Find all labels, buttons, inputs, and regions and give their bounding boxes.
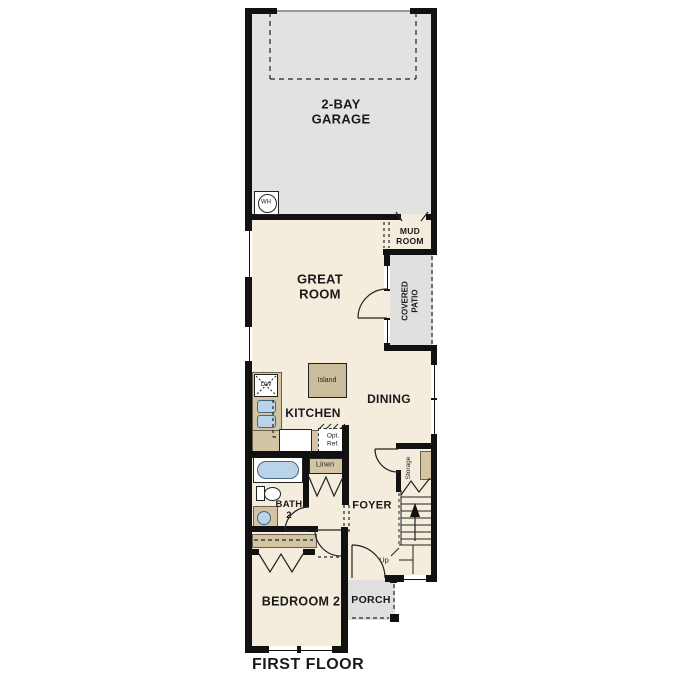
bath2-label: BATH 2 — [276, 499, 303, 521]
window-stair-landing — [402, 575, 428, 582]
wall-bath-north — [245, 451, 348, 458]
window-greatroom-2 — [245, 325, 252, 363]
window-dining-2 — [431, 398, 437, 436]
window-bedroom-2 — [299, 646, 334, 653]
first-floor-title: FIRST FLOOR — [252, 656, 364, 674]
mudroom-door-opening — [401, 214, 426, 220]
wall-bedroom-east — [341, 527, 348, 653]
linen-label: Linen — [316, 461, 334, 470]
covered-patio-label: COVERED PATIO — [400, 281, 419, 321]
wall-top-left-stub — [245, 8, 277, 14]
window-dining-1 — [431, 363, 437, 401]
window-bedroom-1 — [267, 646, 299, 653]
opt-ref-label: Opt. Ref. — [327, 432, 339, 447]
window-patio-1 — [384, 264, 390, 291]
interior-floor-bedroom — [252, 582, 348, 646]
island-label: Island — [318, 377, 337, 385]
wall-patio-south — [384, 345, 434, 351]
wall-kitchen-foyer — [342, 425, 349, 505]
vanity-sink — [257, 511, 271, 525]
water-heater-label: WH — [261, 199, 271, 206]
bedroom2-label: BEDROOM 2 — [262, 595, 340, 610]
wall-storage-west — [396, 470, 401, 492]
foyer-label: FOYER — [352, 500, 391, 513]
porch-corner-br — [390, 614, 399, 622]
closet-jamb-right — [303, 549, 315, 555]
bathtub-basin — [257, 461, 299, 479]
up-label: Up — [379, 557, 389, 566]
garage-label: 2-BAY GARAGE — [312, 97, 371, 128]
porch-label: PORCH — [351, 594, 390, 606]
dishwasher-label: DW — [261, 381, 272, 389]
window-patio-2 — [384, 318, 390, 345]
wall-mudroom-south — [383, 249, 437, 255]
storage-label: Storage — [405, 457, 413, 480]
kitchen-label: KITCHEN — [285, 406, 340, 420]
closet-jamb-left — [252, 549, 259, 555]
dining-label: DINING — [367, 392, 411, 406]
wall-top-right-stub — [410, 8, 437, 14]
wall-foyer-north — [396, 443, 437, 449]
porch-corner-tr — [390, 578, 397, 583]
patio-door-opening — [384, 287, 390, 318]
garage-door-header — [277, 10, 410, 12]
greatroom-label: GREAT ROOM — [297, 272, 343, 303]
bedroom-closet-shelf — [252, 534, 317, 548]
mudroom-label: MUD ROOM — [396, 226, 424, 246]
wall-bath-east — [303, 458, 309, 507]
range-stove — [279, 429, 312, 452]
window-greatroom-1 — [245, 229, 252, 279]
wall-closet-north — [245, 526, 318, 532]
floor-plan: 2-BAY GARAGE MUD ROOM GREAT ROOM COVERED… — [0, 0, 687, 687]
